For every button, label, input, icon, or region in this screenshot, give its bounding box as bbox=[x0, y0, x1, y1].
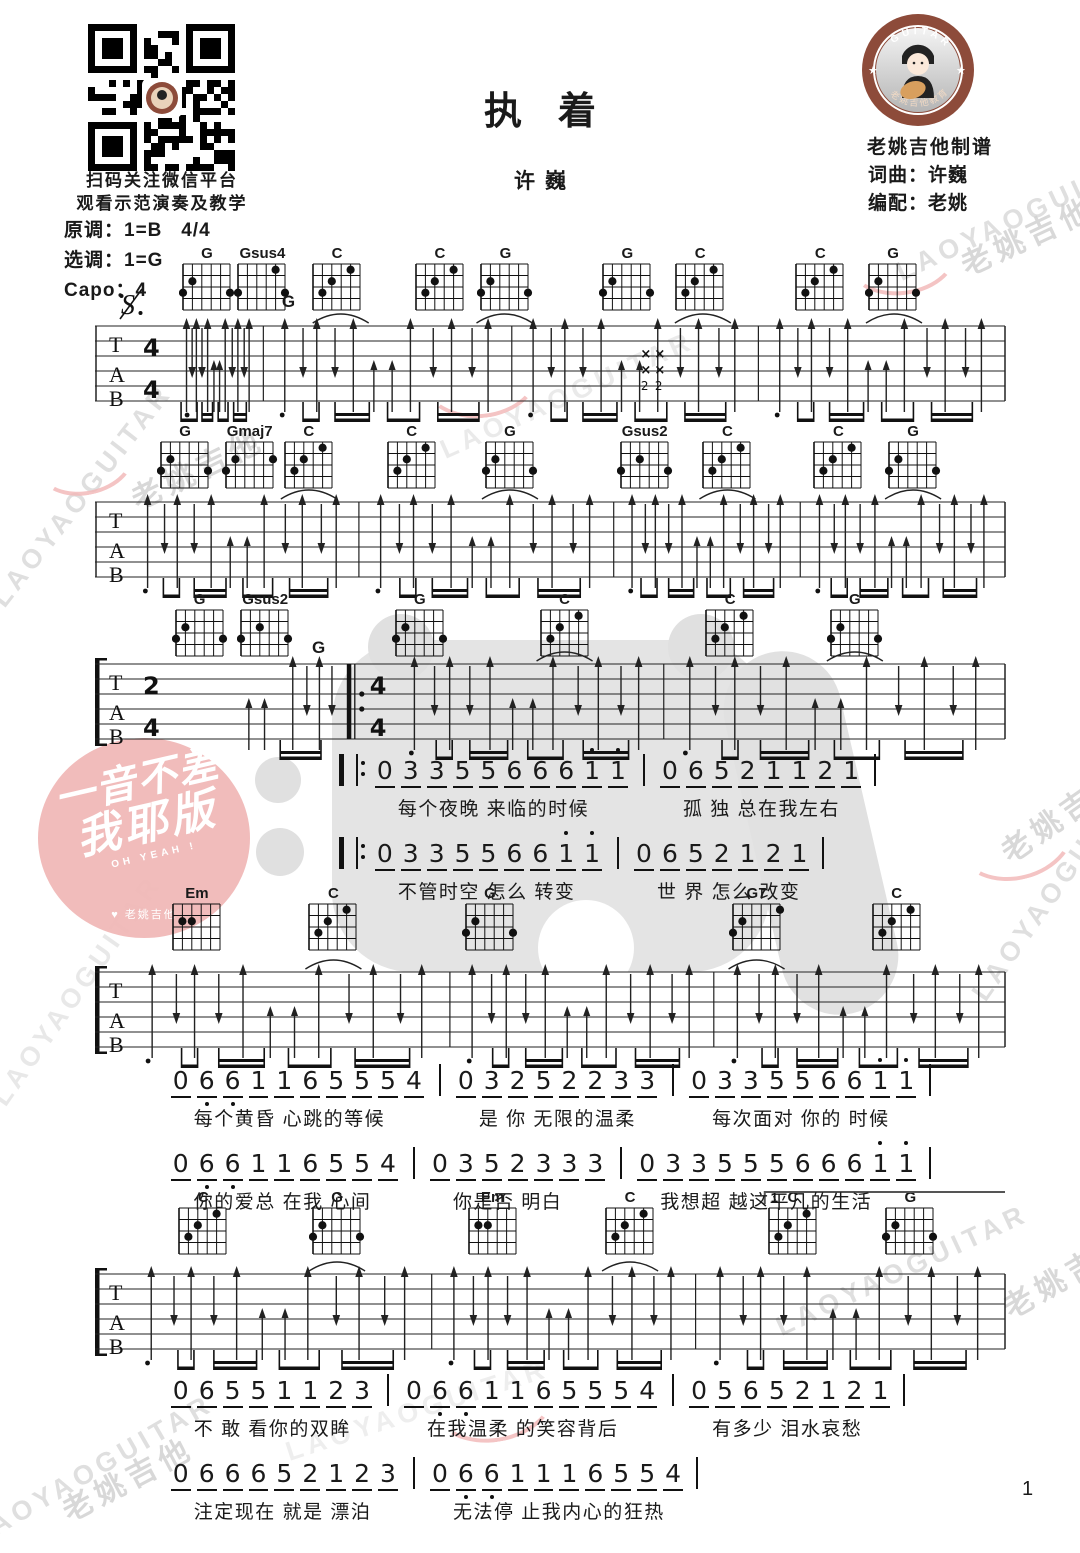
svg-text:A: A bbox=[109, 700, 125, 725]
note-number: 1 bbox=[841, 756, 861, 788]
note-number: 5 bbox=[767, 1376, 787, 1408]
measure: 0335566611每个夜晚 来临的时候 bbox=[372, 752, 631, 821]
lyric-text: 每个黄昏 心跳的等候 bbox=[194, 1104, 427, 1131]
lyric-text: 在我温柔 的笑容背后 bbox=[427, 1414, 660, 1441]
note-number: 6 bbox=[197, 1066, 217, 1098]
svg-text:A: A bbox=[109, 1008, 125, 1033]
svg-text:B: B bbox=[109, 386, 124, 411]
credit-lyrics-composer: 词曲：许巍 bbox=[868, 162, 968, 190]
measure: 05652121有多少 泪水哀愁 bbox=[686, 1372, 893, 1441]
note-number: 2 bbox=[300, 1459, 320, 1491]
laoyao-guitar-logo: GUITAR老姚吉他教育★★ bbox=[860, 12, 976, 128]
note-number: 6 bbox=[504, 839, 524, 871]
measure-barline bbox=[413, 1457, 415, 1489]
chord-grid bbox=[412, 262, 468, 314]
svg-text:A: A bbox=[109, 538, 125, 563]
chord-name: G bbox=[477, 246, 533, 262]
chord-grid bbox=[672, 262, 728, 314]
chord-grid bbox=[157, 440, 213, 492]
chord-name: C bbox=[699, 424, 755, 440]
note-number: 2 bbox=[815, 756, 835, 788]
note-number: 1 bbox=[870, 1149, 890, 1181]
chord-diagram: C bbox=[281, 424, 337, 497]
note-number: 1 bbox=[896, 1149, 916, 1181]
note-number: 3 bbox=[559, 1149, 579, 1181]
note-number: 0 bbox=[660, 756, 680, 788]
svg-text:2: 2 bbox=[641, 379, 649, 393]
note-number: 3 bbox=[689, 1149, 709, 1181]
svg-text:T: T bbox=[109, 670, 123, 695]
chord-name: C bbox=[810, 424, 866, 440]
note-number: 2 bbox=[326, 1376, 346, 1408]
svg-text:★: ★ bbox=[956, 65, 966, 77]
note-number: 3 bbox=[663, 1149, 683, 1181]
chord-name: G bbox=[179, 246, 235, 262]
chord-diagram: G bbox=[482, 424, 538, 497]
lyric-text: 注定现在 就是 漂泊 bbox=[194, 1497, 401, 1524]
note-number: 6 bbox=[300, 1066, 320, 1098]
note-number: 5 bbox=[352, 1066, 372, 1098]
chord-name: C bbox=[281, 424, 337, 440]
end-barline bbox=[929, 1147, 931, 1179]
note-number: 4 bbox=[404, 1066, 424, 1098]
note-number: 1 bbox=[300, 1376, 320, 1408]
note-number: 1 bbox=[764, 756, 784, 788]
note-number: 6 bbox=[741, 1376, 761, 1408]
note-number: 6 bbox=[845, 1149, 865, 1181]
note-number: 6 bbox=[456, 1459, 476, 1491]
measure-barline bbox=[643, 754, 645, 786]
chord-name: C bbox=[412, 246, 468, 262]
lyric-text: 不管时空 怎么 转变 bbox=[398, 877, 605, 904]
notation-numbers: 0661116554 bbox=[427, 1455, 686, 1491]
note-number: 5 bbox=[611, 1376, 631, 1408]
svg-text:4: 4 bbox=[143, 714, 160, 742]
note-number: 5 bbox=[637, 1459, 657, 1491]
note-number: 5 bbox=[741, 1149, 761, 1181]
chord-grid bbox=[179, 262, 235, 314]
note-number: 5 bbox=[611, 1459, 631, 1491]
chord-diagram: C bbox=[810, 424, 866, 497]
note-number: 3 bbox=[585, 1149, 605, 1181]
note-number: 5 bbox=[453, 839, 473, 871]
repeat-sign bbox=[339, 837, 358, 869]
page-number: 1 bbox=[1022, 1478, 1033, 1501]
note-number: 1 bbox=[819, 1376, 839, 1408]
note-number: 0 bbox=[171, 1376, 191, 1408]
measure-barline bbox=[387, 1374, 389, 1406]
note-number: 1 bbox=[249, 1149, 269, 1181]
note-number: 6 bbox=[456, 1376, 476, 1408]
note-number: 0 bbox=[404, 1376, 424, 1408]
measure-barline bbox=[672, 1064, 674, 1096]
note-number: 6 bbox=[223, 1149, 243, 1181]
measure: 033556611每次面对 你的 时候 bbox=[686, 1062, 919, 1131]
notation-numbers: 05652121 bbox=[686, 1372, 893, 1408]
note-number: 5 bbox=[479, 839, 499, 871]
chord-diagram: C bbox=[672, 246, 728, 319]
chord-grid bbox=[384, 440, 440, 492]
svg-text:2: 2 bbox=[655, 379, 663, 393]
note-number: 6 bbox=[249, 1459, 269, 1491]
notation-numbers: 03252233 bbox=[453, 1062, 660, 1098]
notation-numbers: 0661165554 bbox=[401, 1372, 660, 1408]
notation-numbers: 0352333 bbox=[427, 1145, 608, 1181]
note-number: 5 bbox=[767, 1066, 787, 1098]
chord-grid bbox=[599, 262, 655, 314]
measure: 03355566611我想超 越这平凡的生活 bbox=[634, 1145, 919, 1214]
chord-name: G bbox=[865, 246, 921, 262]
note-number: 2 bbox=[712, 839, 732, 871]
chord-diagram: G bbox=[885, 424, 941, 497]
chord-diagram: G bbox=[865, 246, 921, 319]
note-number: 1 bbox=[326, 1459, 346, 1491]
note-number: 5 bbox=[249, 1376, 269, 1408]
note-number: 2 bbox=[508, 1066, 528, 1098]
chord-name: C bbox=[792, 246, 848, 262]
measure: 06521121孤 独 总在我左右 bbox=[657, 752, 864, 821]
note-number: 3 bbox=[401, 756, 421, 788]
note-number: 3 bbox=[401, 839, 421, 871]
svg-text:×: × bbox=[640, 363, 651, 378]
note-number: 5 bbox=[326, 1149, 346, 1181]
note-number: 5 bbox=[559, 1376, 579, 1408]
lyric-text: 每个夜晚 来临的时候 bbox=[398, 794, 631, 821]
svg-text:T: T bbox=[109, 1280, 123, 1305]
lyric-text: 无法停 止我内心的狂热 bbox=[453, 1497, 686, 1524]
note-number: 6 bbox=[530, 756, 550, 788]
note-number: 0 bbox=[171, 1149, 191, 1181]
note-number: 0 bbox=[430, 1149, 450, 1181]
svg-text:A: A bbox=[109, 362, 125, 387]
note-number: 4 bbox=[637, 1376, 657, 1408]
chord-name: C bbox=[537, 592, 593, 608]
chord-diagram: C bbox=[792, 246, 848, 319]
chord-grid bbox=[865, 262, 921, 314]
measure: 0652121世 界 怎么 改变 bbox=[631, 835, 812, 904]
svg-text:T: T bbox=[109, 508, 123, 533]
end-barline bbox=[696, 1457, 698, 1489]
notation-numbers: 0652121 bbox=[631, 835, 812, 871]
measure: 066116554你的爱总 在我 心间 bbox=[168, 1145, 401, 1214]
tab-staff-verse-b: TAB1 bbox=[95, 1262, 1007, 1380]
svg-text:B: B bbox=[109, 1334, 124, 1359]
note-number: 1 bbox=[608, 756, 628, 788]
notation-line: 0661165554每个黄昏 心跳的等候03252233是 你 无限的温柔033… bbox=[168, 1062, 931, 1131]
note-number: 3 bbox=[611, 1066, 631, 1098]
note-number: 5 bbox=[715, 1149, 735, 1181]
svg-text:4: 4 bbox=[143, 376, 160, 404]
note-number: 1 bbox=[582, 839, 602, 871]
note-number: 1 bbox=[556, 839, 576, 871]
end-barline bbox=[874, 754, 876, 786]
chord-grid bbox=[792, 262, 848, 314]
chord-grid bbox=[699, 440, 755, 492]
chord-diagram: Gsus2 bbox=[617, 424, 673, 497]
lyric-text: 我想超 越这平凡的生活 bbox=[660, 1187, 919, 1214]
verse-block: 0661165554每个黄昏 心跳的等候03252233是 你 无限的温柔033… bbox=[168, 1062, 931, 1228]
notation-line: 066116554你的爱总 在我 心间0352333你是否 明白03355566… bbox=[168, 1145, 931, 1214]
measure-barline bbox=[617, 837, 619, 869]
lyric-text: 孤 独 总在我左右 bbox=[683, 794, 864, 821]
note-number: 0 bbox=[171, 1066, 191, 1098]
chord-name: C bbox=[384, 424, 440, 440]
svg-text:×: × bbox=[640, 347, 651, 362]
note-number: 5 bbox=[326, 1066, 346, 1098]
notation-numbers: 033556611 bbox=[372, 835, 605, 871]
svg-text:4: 4 bbox=[370, 714, 387, 742]
note-number: 1 bbox=[559, 1459, 579, 1491]
note-number: 6 bbox=[197, 1376, 217, 1408]
note-number: 1 bbox=[896, 1066, 916, 1098]
note-number: 2 bbox=[508, 1149, 528, 1181]
note-number: 1 bbox=[870, 1376, 890, 1408]
chord-diagram: G bbox=[599, 246, 655, 319]
end-barline bbox=[822, 837, 824, 869]
chord-name: G bbox=[172, 592, 228, 608]
svg-text:B: B bbox=[109, 562, 124, 587]
note-number: 0 bbox=[430, 1459, 450, 1491]
lyric-text: 有多少 泪水哀愁 bbox=[712, 1414, 893, 1441]
note-number: 5 bbox=[585, 1376, 605, 1408]
measure: 066652123注定现在 就是 漂泊 bbox=[168, 1455, 401, 1524]
note-number: 2 bbox=[793, 1376, 813, 1408]
notation-line: 0335566611每个夜晚 来临的时候06521121孤 独 总在我左右 bbox=[339, 752, 876, 821]
lyric-text: 你是否 明白 bbox=[453, 1187, 608, 1214]
chord-name: G bbox=[482, 424, 538, 440]
chord-name: Gsus2 bbox=[617, 424, 673, 440]
tab-staff-verse-a: TAB bbox=[95, 960, 1007, 1078]
note-number: 6 bbox=[845, 1066, 865, 1098]
notation-numbers: 03355566611 bbox=[634, 1145, 919, 1181]
lyric-text: 是 你 无限的温柔 bbox=[479, 1104, 660, 1131]
chord-name: G bbox=[157, 424, 213, 440]
lyric-text: 不 敢 看你的双眸 bbox=[194, 1414, 375, 1441]
chord-grid bbox=[810, 440, 866, 492]
note-number: 6 bbox=[556, 756, 576, 788]
chord-name: Gsus4 bbox=[234, 246, 290, 262]
measure: 0661165554每个黄昏 心跳的等候 bbox=[168, 1062, 427, 1131]
end-barline bbox=[903, 1374, 905, 1406]
note-number: 1 bbox=[482, 1376, 502, 1408]
svg-text:A: A bbox=[109, 1310, 125, 1335]
chord-row-intro-1: GGsus4CCGGCCGG bbox=[95, 246, 1005, 316]
notation-numbers: 0661165554 bbox=[168, 1062, 427, 1098]
svg-text:T: T bbox=[109, 332, 123, 357]
chord-diagram: C bbox=[699, 424, 755, 497]
chord-grid bbox=[885, 440, 941, 492]
note-number: 5 bbox=[686, 839, 706, 871]
note-number: 2 bbox=[738, 756, 758, 788]
chord-diagram: Gmaj7 bbox=[222, 424, 278, 497]
note-number: 6 bbox=[223, 1459, 243, 1491]
note-number: 0 bbox=[171, 1459, 191, 1491]
note-number: 6 bbox=[819, 1066, 839, 1098]
verse-block: 06551123不 敢 看你的双眸0661165554在我温柔 的笑容背后056… bbox=[168, 1372, 906, 1538]
chord-diagram: G bbox=[477, 246, 533, 319]
note-number: 1 bbox=[274, 1376, 294, 1408]
chord-grid bbox=[169, 902, 225, 954]
note-number: 1 bbox=[274, 1066, 294, 1098]
note-number: 2 bbox=[845, 1376, 865, 1408]
note-number: 3 bbox=[456, 1149, 476, 1181]
notation-numbers: 06551123 bbox=[168, 1372, 375, 1408]
note-number: 3 bbox=[482, 1066, 502, 1098]
svg-text:4: 4 bbox=[370, 672, 387, 700]
measure-barline bbox=[620, 1147, 622, 1179]
note-number: 0 bbox=[637, 1149, 657, 1181]
note-number: 0 bbox=[689, 1376, 709, 1408]
tab-staff-intro-2: TAB bbox=[95, 490, 1007, 608]
chord-name: Gmaj7 bbox=[222, 424, 278, 440]
notation-numbers: 0335566611 bbox=[372, 752, 631, 788]
note-number: 5 bbox=[712, 756, 732, 788]
chord-name: Em bbox=[169, 886, 225, 902]
chord-grid bbox=[477, 262, 533, 314]
note-number: 6 bbox=[197, 1149, 217, 1181]
note-number: 0 bbox=[634, 839, 654, 871]
note-number: 3 bbox=[741, 1066, 761, 1098]
chord-diagram: C bbox=[412, 246, 468, 319]
note-number: 2 bbox=[585, 1066, 605, 1098]
svg-text:2: 2 bbox=[143, 672, 160, 700]
chord-diagram: C bbox=[384, 424, 440, 497]
note-number: 6 bbox=[197, 1459, 217, 1491]
note-number: 5 bbox=[352, 1149, 372, 1181]
note-number: 6 bbox=[686, 756, 706, 788]
measure-barline bbox=[439, 1064, 441, 1096]
chord-name: C bbox=[869, 886, 925, 902]
chord-grid bbox=[309, 262, 365, 314]
chord-grid bbox=[222, 440, 278, 492]
notation-line: 06551123不 敢 看你的双眸0661165554在我温柔 的笑容背后056… bbox=[168, 1372, 906, 1441]
note-number: 5 bbox=[534, 1066, 554, 1098]
chord-row-intro-2: GGmaj7CCGGsus2CCG bbox=[95, 424, 1005, 494]
note-number: 6 bbox=[482, 1459, 502, 1491]
end-barline bbox=[929, 1064, 931, 1096]
notation-numbers: 06521121 bbox=[657, 752, 864, 788]
studio-credit: 老姚吉他制谱 bbox=[840, 132, 1020, 159]
chord-grid bbox=[281, 440, 337, 492]
note-number: 1 bbox=[534, 1459, 554, 1491]
chord-name: G bbox=[392, 592, 448, 608]
original-key: 原调：1=B 4/4 bbox=[64, 216, 211, 246]
note-number: 5 bbox=[274, 1459, 294, 1491]
note-number: 5 bbox=[793, 1066, 813, 1098]
notation-line: 033556611不管时空 怎么 转变0652121世 界 怎么 改变 bbox=[339, 835, 876, 904]
chord-name: C bbox=[702, 592, 758, 608]
measure: 0661116554无法停 止我内心的狂热 bbox=[427, 1455, 686, 1524]
note-number: 3 bbox=[637, 1066, 657, 1098]
notation-numbers: 033556611 bbox=[686, 1062, 919, 1098]
watermark-dot-2 bbox=[256, 828, 304, 876]
measure: 0352333你是否 明白 bbox=[427, 1145, 608, 1214]
note-number: 5 bbox=[378, 1066, 398, 1098]
note-number: 0 bbox=[456, 1066, 476, 1098]
note-number: 6 bbox=[530, 839, 550, 871]
measure: 06551123不 敢 看你的双眸 bbox=[168, 1372, 375, 1441]
note-number: 6 bbox=[504, 756, 524, 788]
note-number: 4 bbox=[378, 1149, 398, 1181]
chord-grid bbox=[482, 440, 538, 492]
chord-diagram: G bbox=[157, 424, 213, 497]
note-number: 6 bbox=[660, 839, 680, 871]
notation-line: 066652123注定现在 就是 漂泊0661116554无法停 止我内心的狂热 bbox=[168, 1455, 906, 1524]
chord-diagram: G bbox=[179, 246, 235, 319]
note-number: 6 bbox=[793, 1149, 813, 1181]
measure-barline bbox=[672, 1374, 674, 1406]
verse-block: 0335566611每个夜晚 来临的时候06521121孤 独 总在我左右033… bbox=[339, 752, 876, 918]
note-number: 2 bbox=[559, 1066, 579, 1098]
chord-name: G bbox=[599, 246, 655, 262]
chord-diagram: C bbox=[869, 886, 925, 959]
note-number: 1 bbox=[274, 1149, 294, 1181]
lyric-text: 世 界 怎么 改变 bbox=[657, 877, 812, 904]
chord-diagram: C bbox=[309, 246, 365, 319]
notation-numbers: 066652123 bbox=[168, 1455, 401, 1491]
svg-text:B: B bbox=[109, 724, 124, 749]
note-number: 1 bbox=[249, 1066, 269, 1098]
note-number: 3 bbox=[427, 839, 447, 871]
measure: 03252233是 你 无限的温柔 bbox=[453, 1062, 660, 1131]
svg-text:×: × bbox=[654, 363, 665, 378]
note-number: 3 bbox=[715, 1066, 735, 1098]
svg-text:×: × bbox=[654, 347, 665, 362]
note-number: 1 bbox=[870, 1066, 890, 1098]
chord-name: C bbox=[309, 246, 365, 262]
note-number: 3 bbox=[534, 1149, 554, 1181]
note-number: 6 bbox=[430, 1376, 450, 1408]
note-number: 1 bbox=[789, 756, 809, 788]
note-number: 5 bbox=[767, 1149, 787, 1181]
repeat-sign bbox=[339, 754, 358, 786]
note-number: 6 bbox=[534, 1376, 554, 1408]
note-number: 6 bbox=[819, 1149, 839, 1181]
chord-name: Gsus2 bbox=[237, 592, 293, 608]
note-number: 0 bbox=[689, 1066, 709, 1098]
svg-text:B: B bbox=[109, 1032, 124, 1057]
chord-grid bbox=[869, 902, 925, 954]
note-number: 1 bbox=[582, 756, 602, 788]
credits: 词曲：许巍 编配：老姚 bbox=[868, 162, 968, 218]
note-number: 5 bbox=[453, 756, 473, 788]
lyric-text: 每次面对 你的 时候 bbox=[712, 1104, 919, 1131]
measure: 0661165554在我温柔 的笑容背后 bbox=[401, 1372, 660, 1441]
chord-name: G bbox=[827, 592, 883, 608]
note-number: 4 bbox=[663, 1459, 683, 1491]
note-number: 0 bbox=[375, 839, 395, 871]
note-number: 0 bbox=[375, 756, 395, 788]
chord-diagram: Em bbox=[169, 886, 225, 959]
credit-arranger: 编配：老姚 bbox=[868, 190, 968, 218]
svg-text:T: T bbox=[109, 978, 123, 1003]
note-number: 3 bbox=[427, 756, 447, 788]
note-number: 5 bbox=[482, 1149, 502, 1181]
note-number: 1 bbox=[508, 1459, 528, 1491]
svg-text:4: 4 bbox=[143, 334, 160, 362]
note-number: 1 bbox=[738, 839, 758, 871]
note-number: 1 bbox=[508, 1376, 528, 1408]
measure-barline bbox=[413, 1147, 415, 1179]
note-number: 3 bbox=[352, 1376, 372, 1408]
chord-name: G bbox=[885, 424, 941, 440]
chord-name: C bbox=[672, 246, 728, 262]
note-number: 1 bbox=[789, 839, 809, 871]
note-number: 2 bbox=[352, 1459, 372, 1491]
note-number: 6 bbox=[585, 1459, 605, 1491]
tab-staff-intro-1: TAB44××××22 bbox=[95, 314, 1007, 432]
note-number: 6 bbox=[300, 1149, 320, 1181]
